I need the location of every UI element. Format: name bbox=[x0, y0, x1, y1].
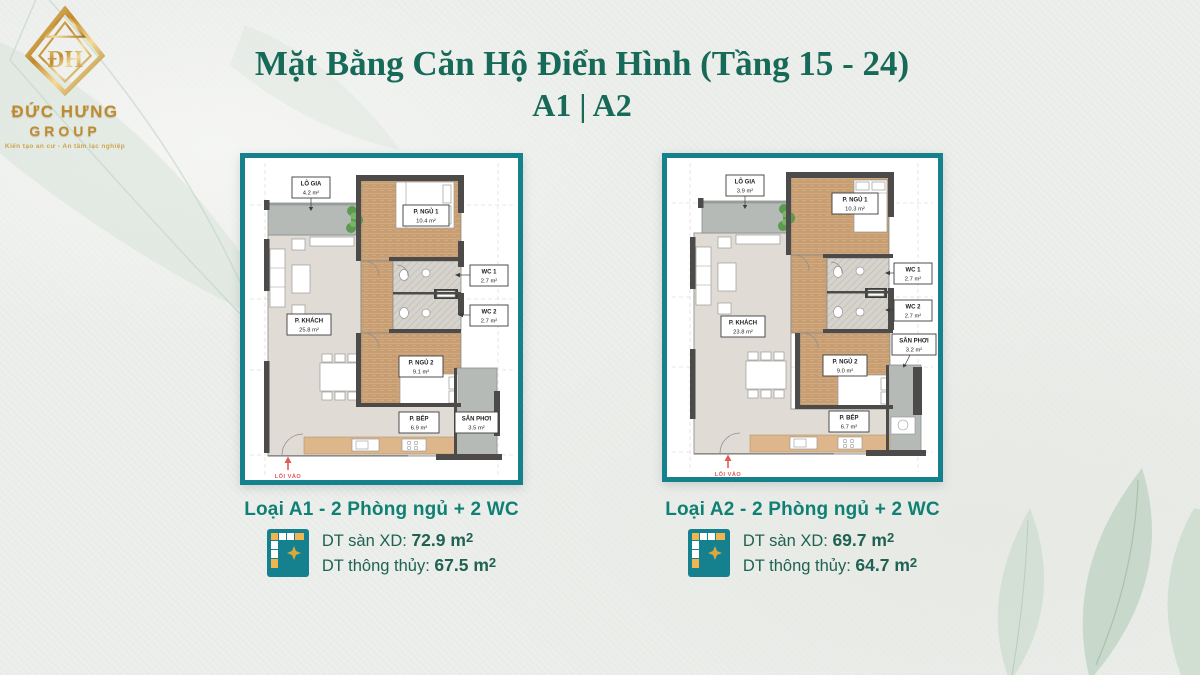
floor-area-info: DT sàn XD: 72.9 m2 DT thông thủy: 67.5 m… bbox=[322, 528, 496, 578]
logo-diamond-icon: ĐH bbox=[25, 6, 105, 96]
caption-a2: Loại A2 - 2 Phòng ngủ + 2 WC DT sàn XD: … bbox=[662, 499, 943, 578]
entrance-label: LỐI VÀO bbox=[715, 471, 742, 478]
label-logia: LÔ GIA bbox=[735, 178, 756, 186]
floorplan-a1: LÔ GIA 4.2 m² P. NGỦ 1 10.4 m² WC 1 2.7 … bbox=[240, 153, 523, 485]
label-logia: LÔ GIA bbox=[301, 180, 322, 188]
area-bedroom2: 9.1 m² bbox=[413, 370, 429, 376]
unit-keyplan-icon bbox=[688, 529, 730, 577]
area-wc1: 2.7 m² bbox=[905, 277, 921, 283]
unit-type-title: Loại A1 - 2 Phòng ngủ + 2 WC bbox=[240, 499, 523, 521]
label-bedroom1: P. NGỦ 1 bbox=[843, 197, 869, 204]
entrance-label: LỐI VÀO bbox=[275, 473, 302, 480]
page-title-line1: Mặt Bằng Căn Hộ Điển Hình (Tầng 15 - 24) bbox=[232, 44, 932, 84]
area-logia: 4.2 m² bbox=[303, 191, 319, 197]
label-wc1: WC 1 bbox=[906, 268, 922, 274]
area-logia: 3.9 m² bbox=[737, 189, 753, 195]
floorplan-a2: LÔ GIA 3.9 m² P. NGỦ 1 10.3 m² WC 1 2.7 … bbox=[662, 153, 943, 482]
label-bedroom2: P. NGỦ 2 bbox=[409, 360, 435, 367]
label-wc2: WC 2 bbox=[906, 305, 922, 311]
label-wc2: WC 2 bbox=[482, 310, 498, 316]
nfa-line: DT thông thủy: 64.7 m2 bbox=[743, 553, 917, 578]
area-bedroom2: 9.0 m² bbox=[837, 369, 853, 375]
label-bedroom1: P. NGỦ 1 bbox=[414, 209, 440, 216]
area-bedroom1: 10.4 m² bbox=[416, 219, 436, 225]
label-kitchen: P. BẾP bbox=[840, 415, 859, 422]
area-living: 25.8 m² bbox=[299, 328, 319, 334]
label-sanphoi: SÂN PHƠI bbox=[462, 416, 492, 423]
label-living: P. KHÁCH bbox=[729, 320, 757, 327]
area-bedroom1: 10.3 m² bbox=[845, 207, 865, 213]
page-title: Mặt Bằng Căn Hộ Điển Hình (Tầng 15 - 24)… bbox=[232, 44, 932, 124]
floor-area-info: DT sàn XD: 69.7 m2 DT thông thủy: 64.7 m… bbox=[743, 528, 917, 578]
unit-type-title: Loại A2 - 2 Phòng ngủ + 2 WC bbox=[662, 499, 943, 521]
logo-tagline: Kiến tạo an cư - An tâm lạc nghiệp bbox=[2, 143, 128, 150]
label-bedroom2: P. NGỦ 2 bbox=[833, 359, 859, 366]
page: ĐH ĐỨC HƯNG GROUP Kiến tạo an cư - An tâ… bbox=[0, 0, 1200, 675]
label-wc1: WC 1 bbox=[482, 270, 498, 276]
label-kitchen: P. BẾP bbox=[410, 416, 429, 423]
unit-keyplan-icon bbox=[267, 529, 309, 577]
label-living: P. KHÁCH bbox=[295, 318, 323, 325]
area-wc2: 2.7 m² bbox=[905, 314, 921, 320]
area-kitchen: 6.9 m² bbox=[411, 426, 427, 432]
page-title-line2: A1 | A2 bbox=[232, 87, 932, 124]
gfa-line: DT sàn XD: 69.7 m2 bbox=[743, 528, 917, 553]
logo-company-name: ĐỨC HƯNG bbox=[2, 102, 128, 122]
area-sanphoi: 3.2 m² bbox=[906, 348, 922, 354]
area-sanphoi: 3.5 m² bbox=[468, 426, 484, 432]
area-wc2: 2.7 m² bbox=[481, 319, 497, 325]
caption-a1: Loại A1 - 2 Phòng ngủ + 2 WC DT sàn XD: … bbox=[240, 499, 523, 578]
label-sanphoi: SÂN PHƠI bbox=[899, 338, 929, 345]
area-living: 23.8 m² bbox=[733, 330, 753, 336]
nfa-line: DT thông thủy: 67.5 m2 bbox=[322, 553, 496, 578]
leaf-decoration-bottom-right bbox=[970, 450, 1200, 675]
gfa-line: DT sàn XD: 72.9 m2 bbox=[322, 528, 496, 553]
logo-group-word: GROUP bbox=[2, 123, 128, 139]
company-logo: ĐH ĐỨC HƯNG GROUP Kiến tạo an cư - An tâ… bbox=[2, 6, 128, 150]
svg-text:ĐH: ĐH bbox=[47, 47, 83, 73]
area-kitchen: 6.7 m² bbox=[841, 425, 857, 431]
area-wc1: 2.7 m² bbox=[481, 279, 497, 285]
